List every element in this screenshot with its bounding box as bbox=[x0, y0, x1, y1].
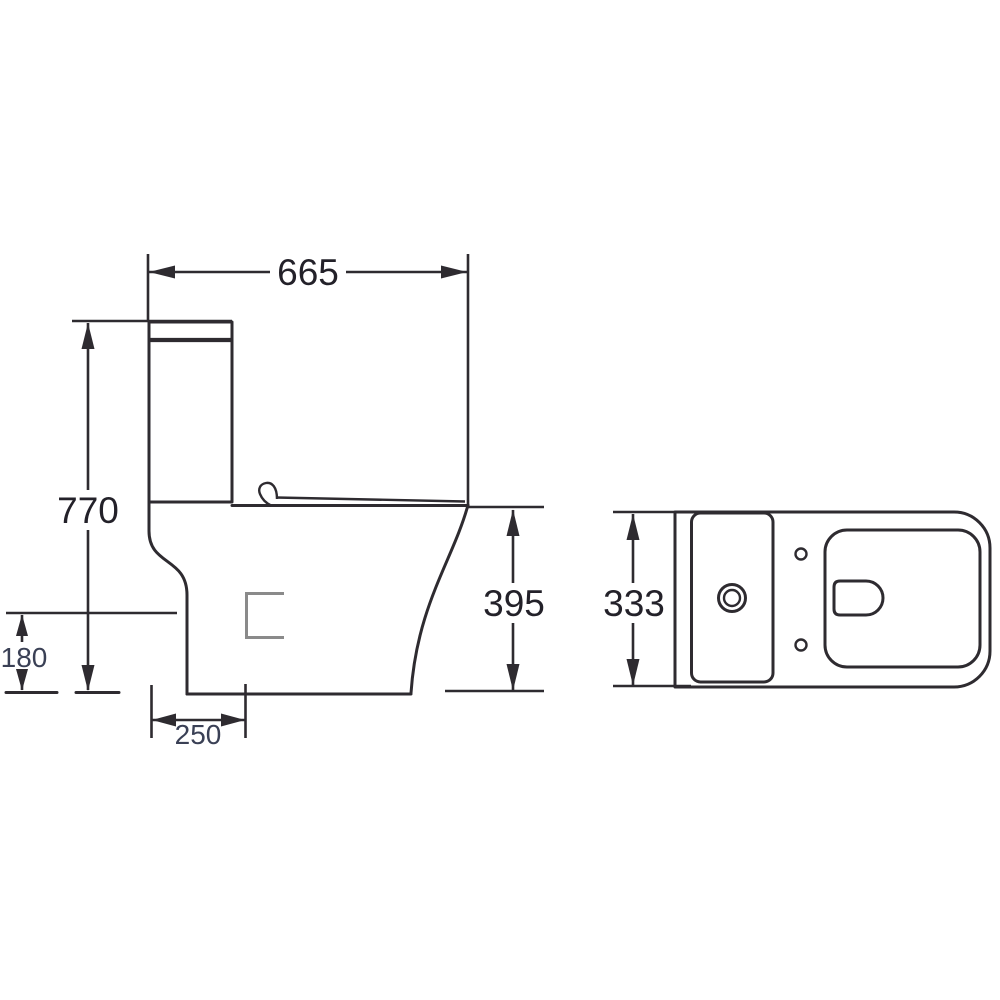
dim-label: 180 bbox=[1, 642, 48, 673]
dim-pan-height: 395 bbox=[445, 507, 552, 691]
dim-outlet-height: 180 bbox=[0, 615, 50, 691]
dim-label: 665 bbox=[277, 252, 339, 293]
hinge-hole-bottom bbox=[796, 640, 807, 651]
dim-overall-depth: 665 bbox=[148, 252, 468, 505]
arrowhead-up bbox=[82, 323, 95, 349]
dim-label: 250 bbox=[175, 719, 222, 750]
arrowhead-right bbox=[441, 266, 467, 279]
bowl-front-curve bbox=[411, 505, 468, 693]
dim-overall-width: 333 bbox=[596, 512, 691, 686]
hinge-hole-top bbox=[796, 549, 807, 560]
arrowhead-left bbox=[149, 266, 175, 279]
outlet-marker bbox=[247, 594, 285, 638]
arrowhead-down bbox=[82, 665, 95, 691]
arrowhead-up bbox=[16, 615, 28, 637]
plan-view: 333 bbox=[596, 512, 990, 687]
flush-opening bbox=[834, 581, 883, 615]
dim-overall-height: 770 bbox=[50, 321, 232, 691]
toilet-dimension-drawing: 665 770 180 250 bbox=[0, 0, 1000, 1000]
dim-label: 770 bbox=[57, 490, 119, 531]
seat-ring-outline bbox=[825, 530, 980, 667]
pedestal-back-curve bbox=[149, 502, 187, 694]
push-button-outer bbox=[719, 585, 746, 612]
arrowhead-left bbox=[152, 714, 176, 727]
arrowhead-right bbox=[221, 714, 245, 727]
side-view: 665 770 180 250 bbox=[0, 252, 552, 750]
arrowhead-down bbox=[507, 664, 520, 691]
seat-top-line bbox=[276, 498, 465, 502]
arrowhead-down bbox=[627, 659, 640, 686]
push-button-inner bbox=[724, 590, 740, 606]
dim-label: 395 bbox=[483, 583, 545, 624]
cistern-outline bbox=[149, 322, 232, 502]
arrowhead-up bbox=[507, 510, 520, 537]
cistern-plan-outline bbox=[692, 513, 774, 682]
technical-drawing-page: 665 770 180 250 bbox=[0, 0, 1000, 1000]
arrowhead-up bbox=[627, 514, 640, 540]
seat-hinge-hook bbox=[259, 483, 277, 506]
dim-label: 333 bbox=[603, 583, 665, 624]
